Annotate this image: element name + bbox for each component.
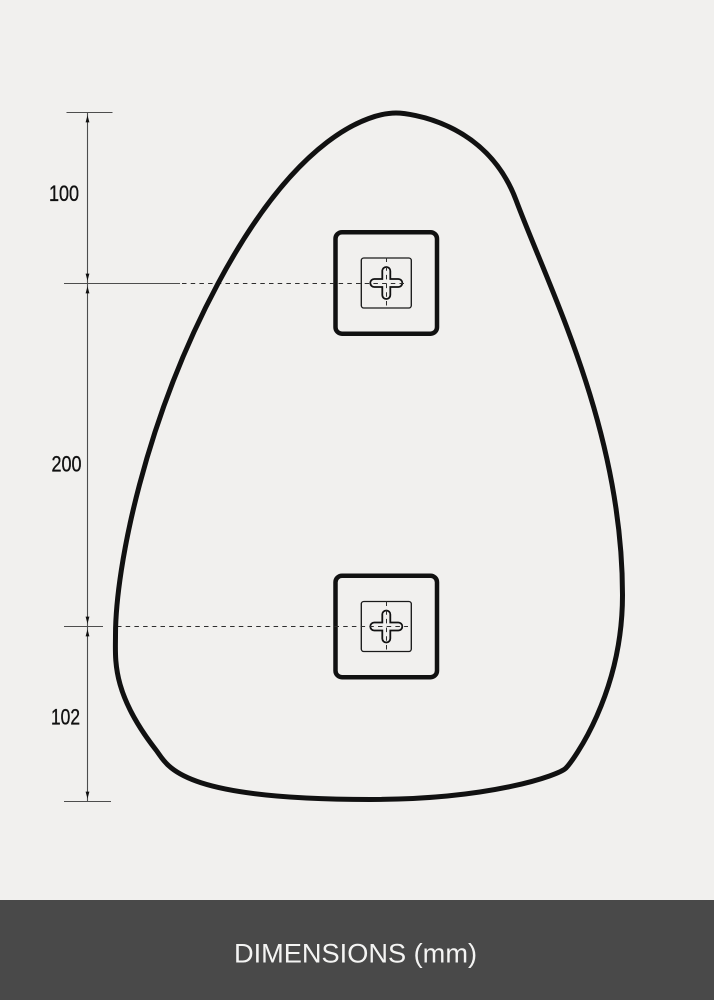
svg-text:200: 200 [52,452,82,477]
svg-text:100: 100 [49,181,79,206]
svg-text:DIMENSIONS (mm): DIMENSIONS (mm) [234,939,477,969]
svg-text:102: 102 [51,705,80,730]
